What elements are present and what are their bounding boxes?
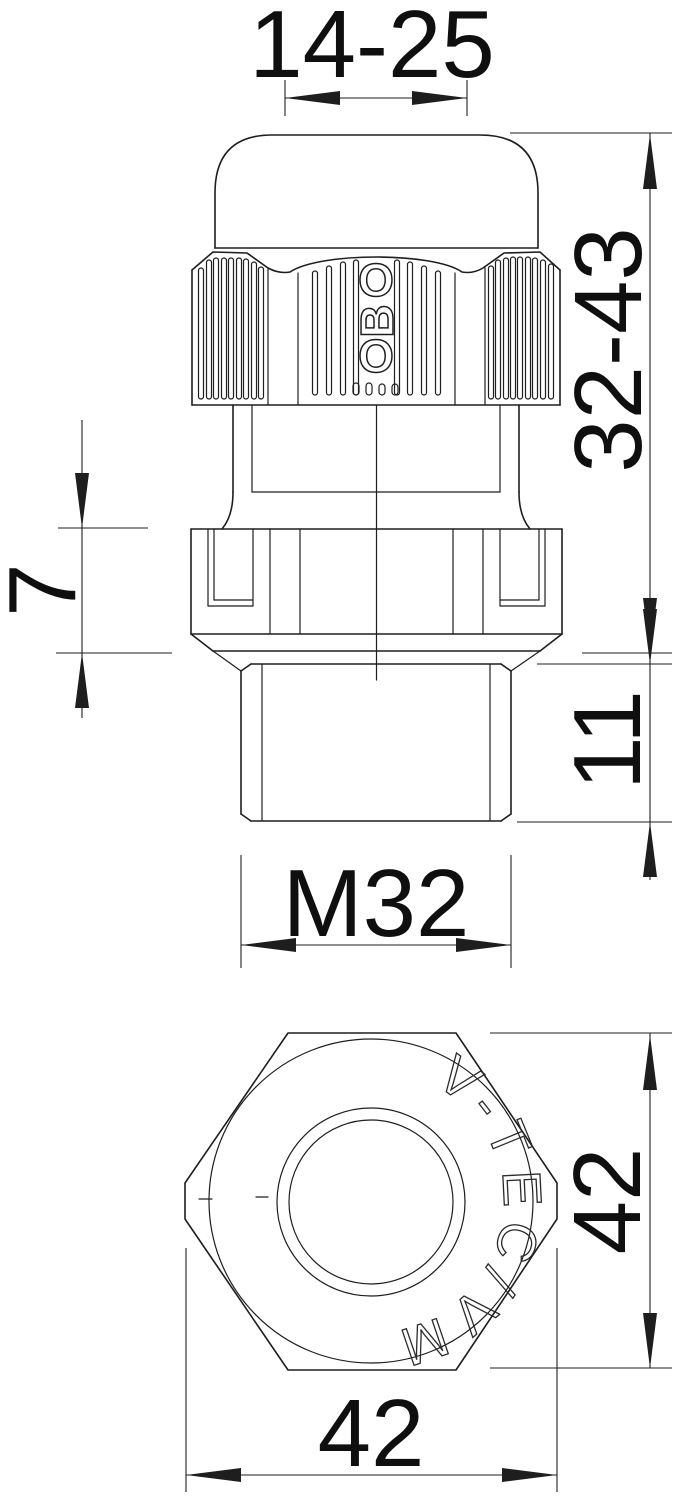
dimension-wrench-size-side-label: 42: [554, 1148, 661, 1255]
arrowhead-down: [75, 473, 89, 528]
dimension-cap-travel: 7: [0, 420, 172, 718]
arrowhead-left: [241, 938, 296, 952]
arrowhead-left: [186, 1468, 241, 1482]
right-rib-block: [489, 257, 554, 399]
right-slot: [500, 529, 545, 606]
arrowhead-up: [643, 1035, 657, 1090]
bottom-view: V-TEC/VM: [185, 1033, 557, 1380]
side-view: O B O: [191, 135, 562, 821]
thread: [241, 664, 511, 821]
seal-ring-outer: [277, 1108, 465, 1296]
logo-letter-o-top: O: [358, 254, 394, 306]
left-rib-block: [199, 258, 264, 399]
cable-hole: [289, 1120, 453, 1284]
arrowhead-up: [643, 134, 657, 189]
dimension-overall-height: 32-43: [510, 133, 672, 653]
arrowhead-right: [502, 1468, 557, 1482]
arrowhead-down: [643, 1313, 657, 1368]
dimension-thread-size: M32: [241, 850, 511, 968]
dimension-thread-length-label: 11: [554, 690, 661, 790]
arrowhead-up: [75, 653, 89, 708]
arrowhead-right: [456, 938, 511, 952]
dimension-thread-size-label: M32: [283, 850, 470, 957]
arrowhead-down: [643, 609, 657, 664]
ribbed-collar: O B O: [192, 252, 560, 405]
technical-drawing-page: O B O: [0, 0, 675, 1500]
dimension-clamping-range: 14-25: [249, 0, 495, 116]
dimension-overall-height-label: 32-43: [555, 227, 662, 473]
arrowhead-up: [643, 822, 657, 877]
left-slot: [208, 529, 253, 606]
cable-gland-drawing: O B O: [0, 0, 675, 1500]
dimension-clamping-range-label: 14-25: [249, 0, 495, 98]
obo-logo: O B O: [351, 254, 403, 395]
cap-dome: [215, 135, 538, 248]
dimension-wrench-size-bottom-label: 42: [318, 1380, 425, 1487]
logo-letter-o-bottom: O: [358, 330, 394, 382]
dimension-thread-length: 11: [517, 609, 672, 880]
mold-marks: [353, 383, 398, 395]
engraving-text: V-TEC/VM: [385, 1044, 553, 1380]
